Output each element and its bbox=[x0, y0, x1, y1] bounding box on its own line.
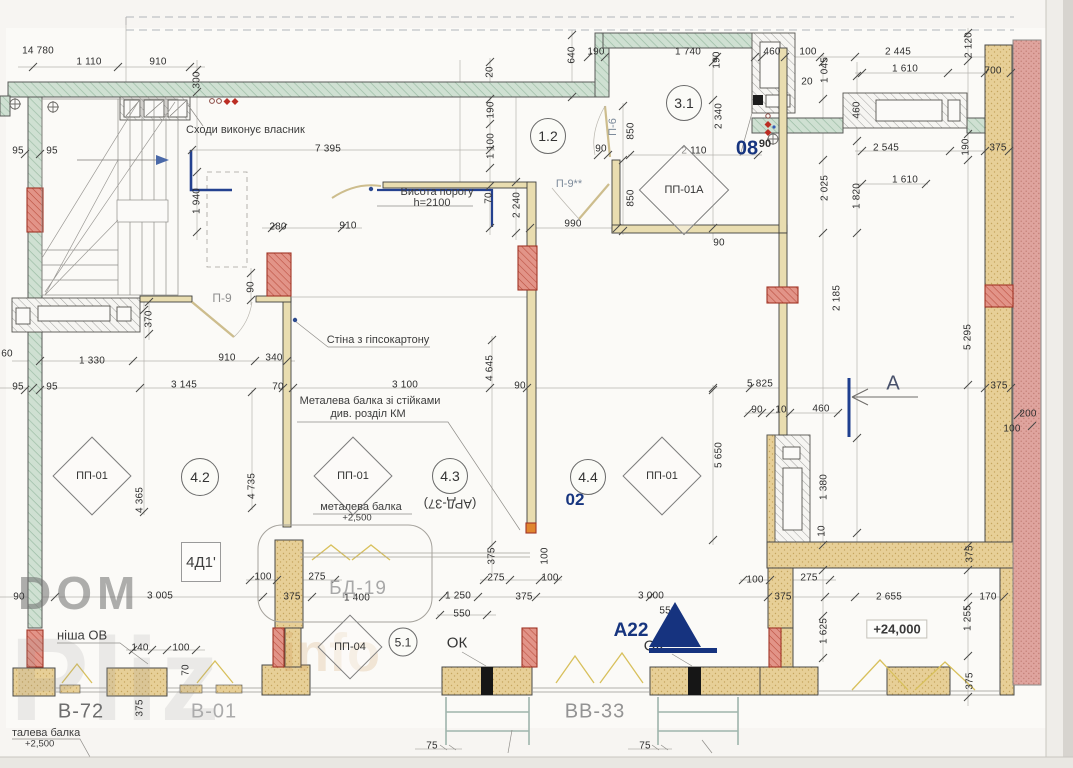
note-niche-ov: ніша ОВ bbox=[57, 628, 107, 643]
beam-tag-v01: В-01 bbox=[191, 701, 237, 724]
beam-tag-ard37: (АРД-37) bbox=[424, 497, 477, 512]
note-metal-beam-1: Металева балка зі стійками bbox=[300, 395, 441, 407]
note-stairs-by-owner: Сходи виконує власник bbox=[186, 124, 305, 136]
note-gypsum-wall: Стіна з гіпсокартону bbox=[327, 334, 430, 346]
door-tag-p9s: П-9** bbox=[556, 178, 582, 190]
beam-tag-vv33: ВВ-33 bbox=[565, 701, 626, 724]
note-metal-beam-small: металева балка bbox=[320, 501, 402, 513]
detail-box-4d1: 4Д1' bbox=[181, 542, 221, 582]
level-mark-24000: +24,000 bbox=[866, 620, 927, 639]
door-tag-p9: П-9 bbox=[212, 291, 231, 305]
opening-mark-08-width: 90 bbox=[759, 138, 771, 150]
floor-plan-sheet: DOM Pliz info 14 7801 1109103007 3959595… bbox=[0, 0, 1073, 768]
note-threshold-height-2: h=2100 bbox=[413, 197, 450, 209]
opening-mark-02: 02 bbox=[566, 490, 585, 510]
north-mark-a22: А22 bbox=[614, 620, 649, 642]
section-letter-a: А bbox=[886, 373, 899, 396]
note-beam-bottom: талева балка bbox=[12, 727, 80, 739]
note-level-2500: +2,500 bbox=[342, 513, 371, 524]
annotation-layer: Сходи виконує власник Висота порогу h=21… bbox=[0, 0, 1073, 768]
north-triangle-bar bbox=[649, 648, 717, 653]
opening-mark-08: 08 bbox=[736, 138, 758, 161]
note-metal-beam-2: див. розділ КМ bbox=[330, 408, 405, 420]
window-tag-ok-1: ОК bbox=[447, 635, 467, 652]
note-level-2500-bottom: +2,500 bbox=[25, 739, 54, 750]
door-tag-p6: П-6 bbox=[607, 118, 619, 136]
north-triangle-icon bbox=[649, 602, 701, 647]
beam-tag-v72: В-72 bbox=[58, 701, 104, 724]
detail-box-4d1-label: 4Д1' bbox=[186, 554, 216, 571]
beam-tag-bd19: БД-19 bbox=[329, 578, 387, 600]
